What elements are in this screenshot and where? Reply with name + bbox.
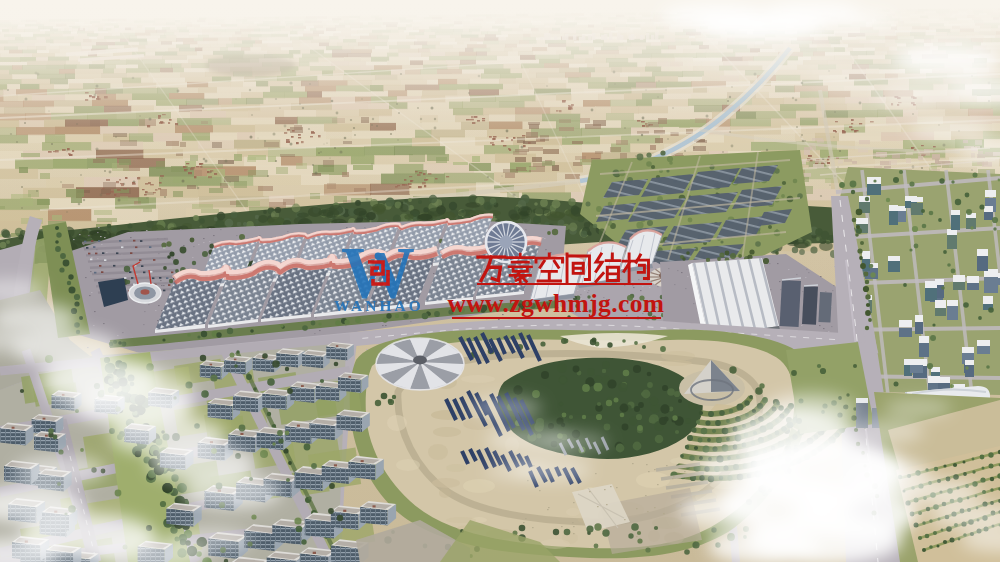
- svg-text:WANHAO: WANHAO: [334, 297, 423, 314]
- svg-text:www.zgwhmjg.com: www.zgwhmjg.com: [447, 289, 664, 318]
